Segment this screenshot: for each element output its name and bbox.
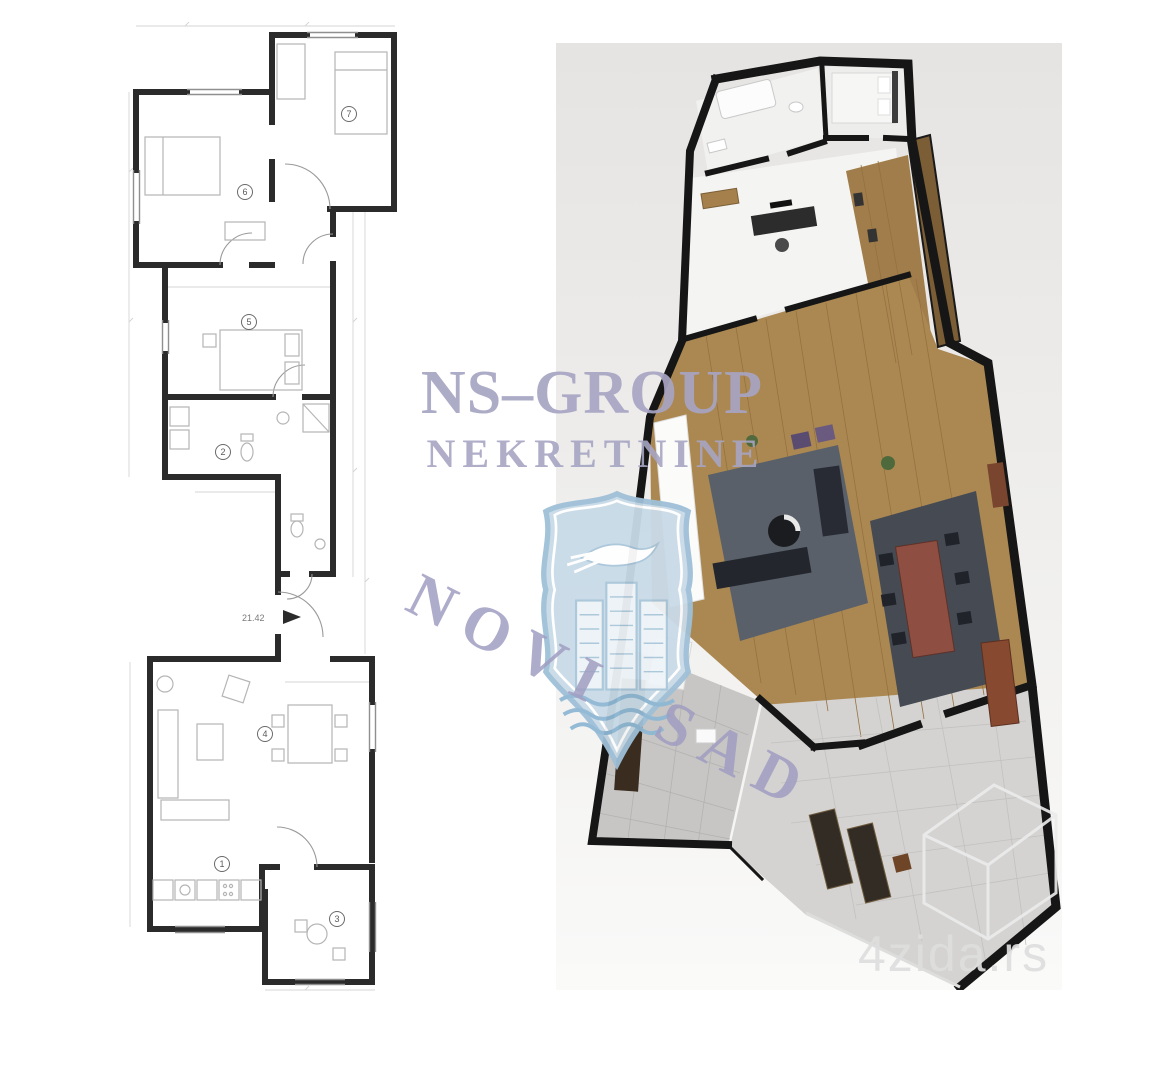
floorplan-3d [556, 43, 1062, 990]
kitchen-island [648, 636, 692, 690]
plant [746, 435, 758, 447]
room-marker: 3 [330, 912, 345, 927]
svg-text:4: 4 [262, 729, 267, 739]
furniture-2d [145, 44, 387, 960]
headboard [892, 71, 898, 123]
wall-frame [867, 228, 878, 242]
listing-image: 21.42 1 2 3 4 5 6 7 [0, 0, 1176, 1080]
desk-chair [775, 238, 789, 252]
room-marker: 6 [238, 185, 253, 200]
svg-text:2: 2 [220, 447, 225, 457]
entrance-label: 21.42 [242, 613, 265, 623]
floorplan-2d: 21.42 1 2 3 4 5 6 7 [125, 22, 417, 997]
room-marker: 2 [216, 445, 231, 460]
windows-2d [134, 33, 376, 985]
walls-2d [136, 35, 394, 982]
wall-frame [853, 192, 864, 206]
entrance-marker: 21.42 [242, 610, 301, 624]
svg-text:7: 7 [346, 109, 351, 119]
room-marker: 7 [342, 107, 357, 122]
room-marker: 4 [258, 727, 273, 742]
room-marker: 1 [215, 857, 230, 872]
svg-text:3: 3 [334, 914, 339, 924]
entrance-arrow-icon [283, 610, 301, 624]
svg-text:6: 6 [242, 187, 247, 197]
svg-text:5: 5 [246, 317, 251, 327]
plant [881, 456, 895, 470]
toilet [789, 102, 803, 112]
appliance [696, 729, 716, 743]
dimension-lines [129, 22, 395, 990]
room-marker: 5 [242, 315, 257, 330]
svg-text:1: 1 [219, 859, 224, 869]
